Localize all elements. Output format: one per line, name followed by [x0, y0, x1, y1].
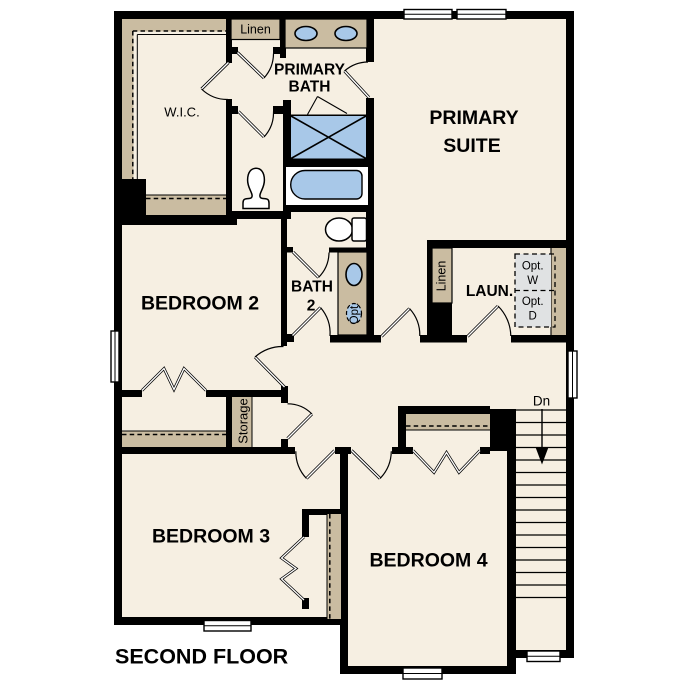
svg-text:D: D — [529, 311, 537, 323]
svg-text:PRIMARY: PRIMARY — [429, 107, 518, 129]
svg-text:SUITE: SUITE — [443, 135, 500, 157]
svg-text:W: W — [527, 275, 538, 287]
svg-text:PRIMARY: PRIMARY — [274, 62, 346, 79]
svg-text:SECOND FLOOR: SECOND FLOOR — [115, 645, 289, 669]
svg-text:Storage: Storage — [236, 398, 251, 444]
svg-text:Linen: Linen — [240, 23, 271, 37]
svg-text:2: 2 — [307, 298, 316, 315]
svg-text:LAUN.: LAUN. — [466, 283, 513, 300]
svg-text:BEDROOM 3: BEDROOM 3 — [152, 526, 270, 548]
svg-text:Opt.: Opt. — [522, 261, 544, 273]
svg-text:BATH: BATH — [289, 79, 331, 96]
svg-text:BEDROOM 4: BEDROOM 4 — [369, 550, 487, 572]
svg-text:Opt.: Opt. — [522, 296, 544, 308]
svg-text:Dn: Dn — [533, 394, 550, 409]
svg-text:BEDROOM 2: BEDROOM 2 — [141, 293, 259, 315]
svg-text:W.I.C.: W.I.C. — [164, 105, 199, 120]
svg-text:BATH: BATH — [291, 279, 333, 296]
svg-text:Linen: Linen — [435, 261, 449, 292]
svg-text:Opt.: Opt. — [349, 303, 361, 325]
